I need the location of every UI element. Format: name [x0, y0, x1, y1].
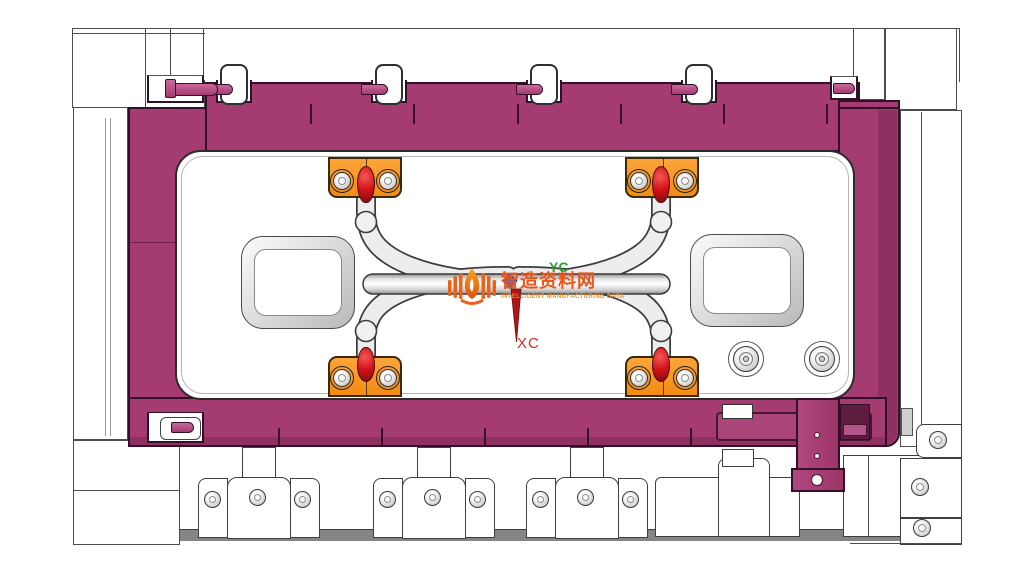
ejector-screw-center — [582, 494, 589, 501]
clamp-screw-center — [681, 374, 689, 382]
latch-hole — [814, 432, 820, 438]
ejector-stem — [417, 447, 451, 479]
corner-block — [900, 458, 962, 518]
frame-right-rail-shadow — [878, 110, 897, 444]
ejector-stem — [570, 447, 604, 479]
ejector-stem — [242, 447, 276, 479]
locating-ring-dot — [819, 356, 825, 362]
corner-pin — [833, 83, 855, 94]
rail-segment-tick — [278, 428, 280, 445]
plate-seam-line — [850, 543, 962, 544]
latch-pocket-bar — [843, 424, 867, 436]
square-boss — [241, 236, 355, 329]
ejector-screw-center — [474, 496, 481, 503]
latch-hole — [814, 453, 820, 459]
tab-pin — [361, 84, 388, 95]
clamp-screw-center — [338, 374, 346, 382]
logo-swoosh — [461, 300, 483, 304]
corner-screw-center — [918, 524, 926, 532]
ejector-screw-center — [209, 496, 216, 503]
ejector-block-side — [373, 478, 403, 538]
clamp-screw-center — [338, 177, 346, 185]
watermark-logo — [447, 266, 497, 306]
square-boss — [690, 234, 804, 327]
ejector-block-side — [618, 478, 648, 538]
rail-segment-tick — [620, 104, 622, 124]
corner-block — [900, 518, 962, 545]
sprue-pin-red — [357, 347, 375, 382]
ejector-block-side — [198, 478, 228, 538]
rail-segment-tick — [587, 428, 589, 445]
left-bottom-plate — [73, 440, 180, 545]
plate-seam-line — [73, 490, 180, 491]
ejector-screw-center — [627, 496, 634, 503]
ejector-block-center — [227, 477, 291, 539]
right-plate-column — [900, 110, 962, 447]
corner-screw-center — [916, 483, 924, 491]
sprue-pin-red — [652, 166, 670, 203]
latch-hole — [811, 474, 823, 486]
square-boss-face — [254, 249, 342, 316]
rail-segment-tick — [310, 104, 312, 124]
square-boss-face — [703, 247, 791, 314]
plate-seam-line — [170, 28, 171, 80]
rail-segment-tick — [381, 428, 383, 445]
ejector-block-side — [290, 478, 320, 538]
ejector-screw-center — [384, 496, 391, 503]
sprue-pin-red — [652, 347, 670, 382]
lower-plate-slot — [722, 449, 754, 467]
cad-viewport[interactable]: 智造资料网 INTELLIGENT MANUFACTURING DATA YC … — [0, 0, 1036, 569]
ejector-block-center — [555, 477, 619, 539]
plate-seam-line — [72, 33, 205, 34]
ejector-block-side — [465, 478, 495, 538]
rail-segment-tick — [723, 104, 725, 124]
rail-segment-tick — [484, 428, 486, 445]
tab-pin — [671, 84, 698, 95]
ejector-screw-center — [429, 494, 436, 501]
clamp-screw-center — [384, 374, 392, 382]
corner-pin — [171, 422, 194, 433]
ejector-screw-center — [299, 496, 306, 503]
ejector-block-center — [402, 477, 466, 539]
watermark-subtitle: INTELLIGENT MANUFACTURING DATA — [501, 294, 624, 300]
left-plate-column — [73, 107, 128, 440]
clamp-screw-center — [384, 177, 392, 185]
clamp-screw-center — [635, 177, 643, 185]
clamp-screw-center — [681, 177, 689, 185]
rail-segment-tick — [826, 104, 828, 124]
clamp-screw-center — [635, 374, 643, 382]
corner-pin — [175, 83, 218, 96]
corner-screw-center — [934, 436, 942, 444]
yc-axis-label: YC — [549, 259, 568, 275]
rail-segment-tick — [690, 428, 692, 445]
plate-seam-line — [868, 456, 869, 536]
latch-slot — [722, 404, 753, 419]
plate-seam-line — [110, 118, 111, 436]
ejector-block-side — [526, 478, 556, 538]
plate-seam-line — [203, 28, 204, 82]
rail-segment-tick — [517, 104, 519, 124]
plate-seam-line — [145, 28, 146, 107]
plate-seam-line — [921, 112, 922, 445]
ejector-screw-center — [254, 494, 261, 501]
plate-seam-line — [105, 118, 106, 436]
xc-axis-label: XC — [517, 335, 540, 352]
tab-pin — [516, 84, 543, 95]
sprue-pin-red — [357, 166, 375, 203]
locating-ring-dot — [743, 356, 749, 362]
ejector-screw-center — [537, 496, 544, 503]
rail-segment-tick — [413, 104, 415, 124]
rail-stop-tab — [901, 408, 913, 436]
lower-plate-block — [718, 458, 770, 537]
top-right-plate-large — [885, 28, 957, 110]
top-plate-strip — [72, 28, 960, 82]
